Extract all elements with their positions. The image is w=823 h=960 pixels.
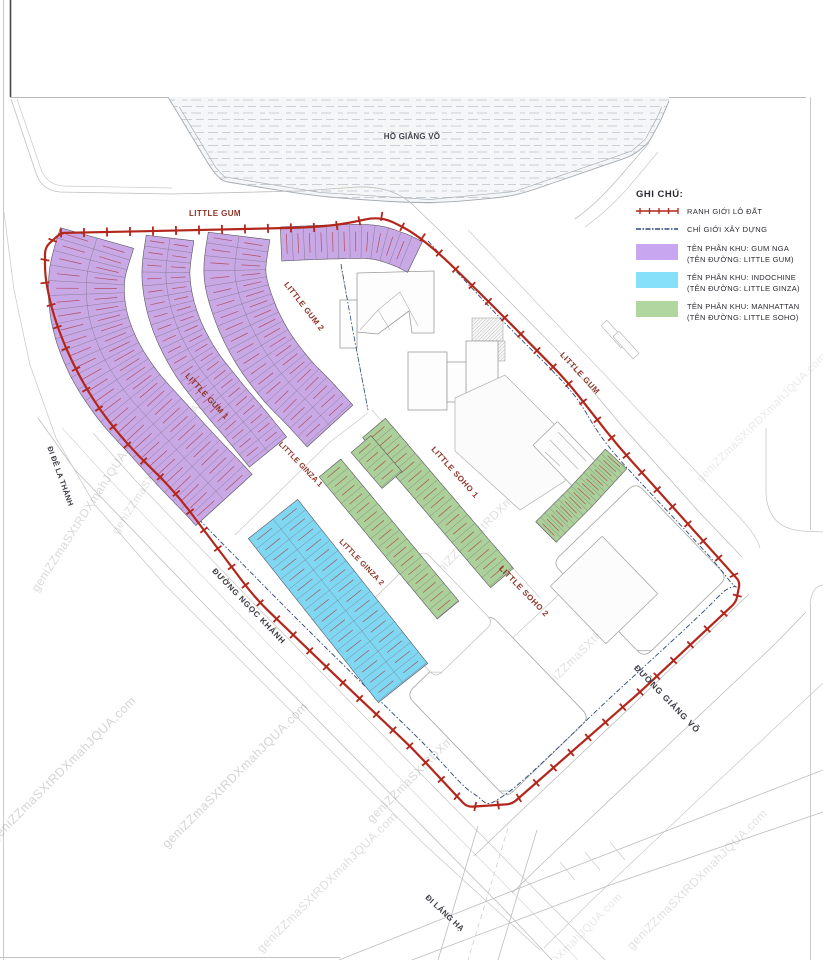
svg-text:LITTLE GUM: LITTLE GUM [189,209,241,218]
svg-text:TÊN PHÂN KHU: INDOCHINE: TÊN PHÂN KHU: INDOCHINE [687,273,796,282]
svg-text:(TÊN ĐƯỜNG: LITTLE SOHO): (TÊN ĐƯỜNG: LITTLE SOHO) [687,313,799,322]
svg-text:HỒ GIẢNG VÕ: HỒ GIẢNG VÕ [384,131,440,141]
svg-text:TÊN PHÂN KHU: MANHATTAN: TÊN PHÂN KHU: MANHATTAN [687,302,799,311]
svg-text:RANH GIỚI LÔ ĐẤT: RANH GIỚI LÔ ĐẤT [687,206,762,216]
svg-text:GHI CHÚ:: GHI CHÚ: [636,188,683,200]
svg-text:TÊN PHÂN KHU: GUM NGA: TÊN PHÂN KHU: GUM NGA [687,244,789,253]
svg-text:(TÊN ĐƯỜNG: LITTLE GINZA): (TÊN ĐƯỜNG: LITTLE GINZA) [687,284,800,293]
svg-text:CHỈ GIỚI XÂY DỰNG: CHỈ GIỚI XÂY DỰNG [687,225,767,234]
svg-text:(TÊN ĐƯỜNG: LITTLE GUM): (TÊN ĐƯỜNG: LITTLE GUM) [687,255,794,264]
